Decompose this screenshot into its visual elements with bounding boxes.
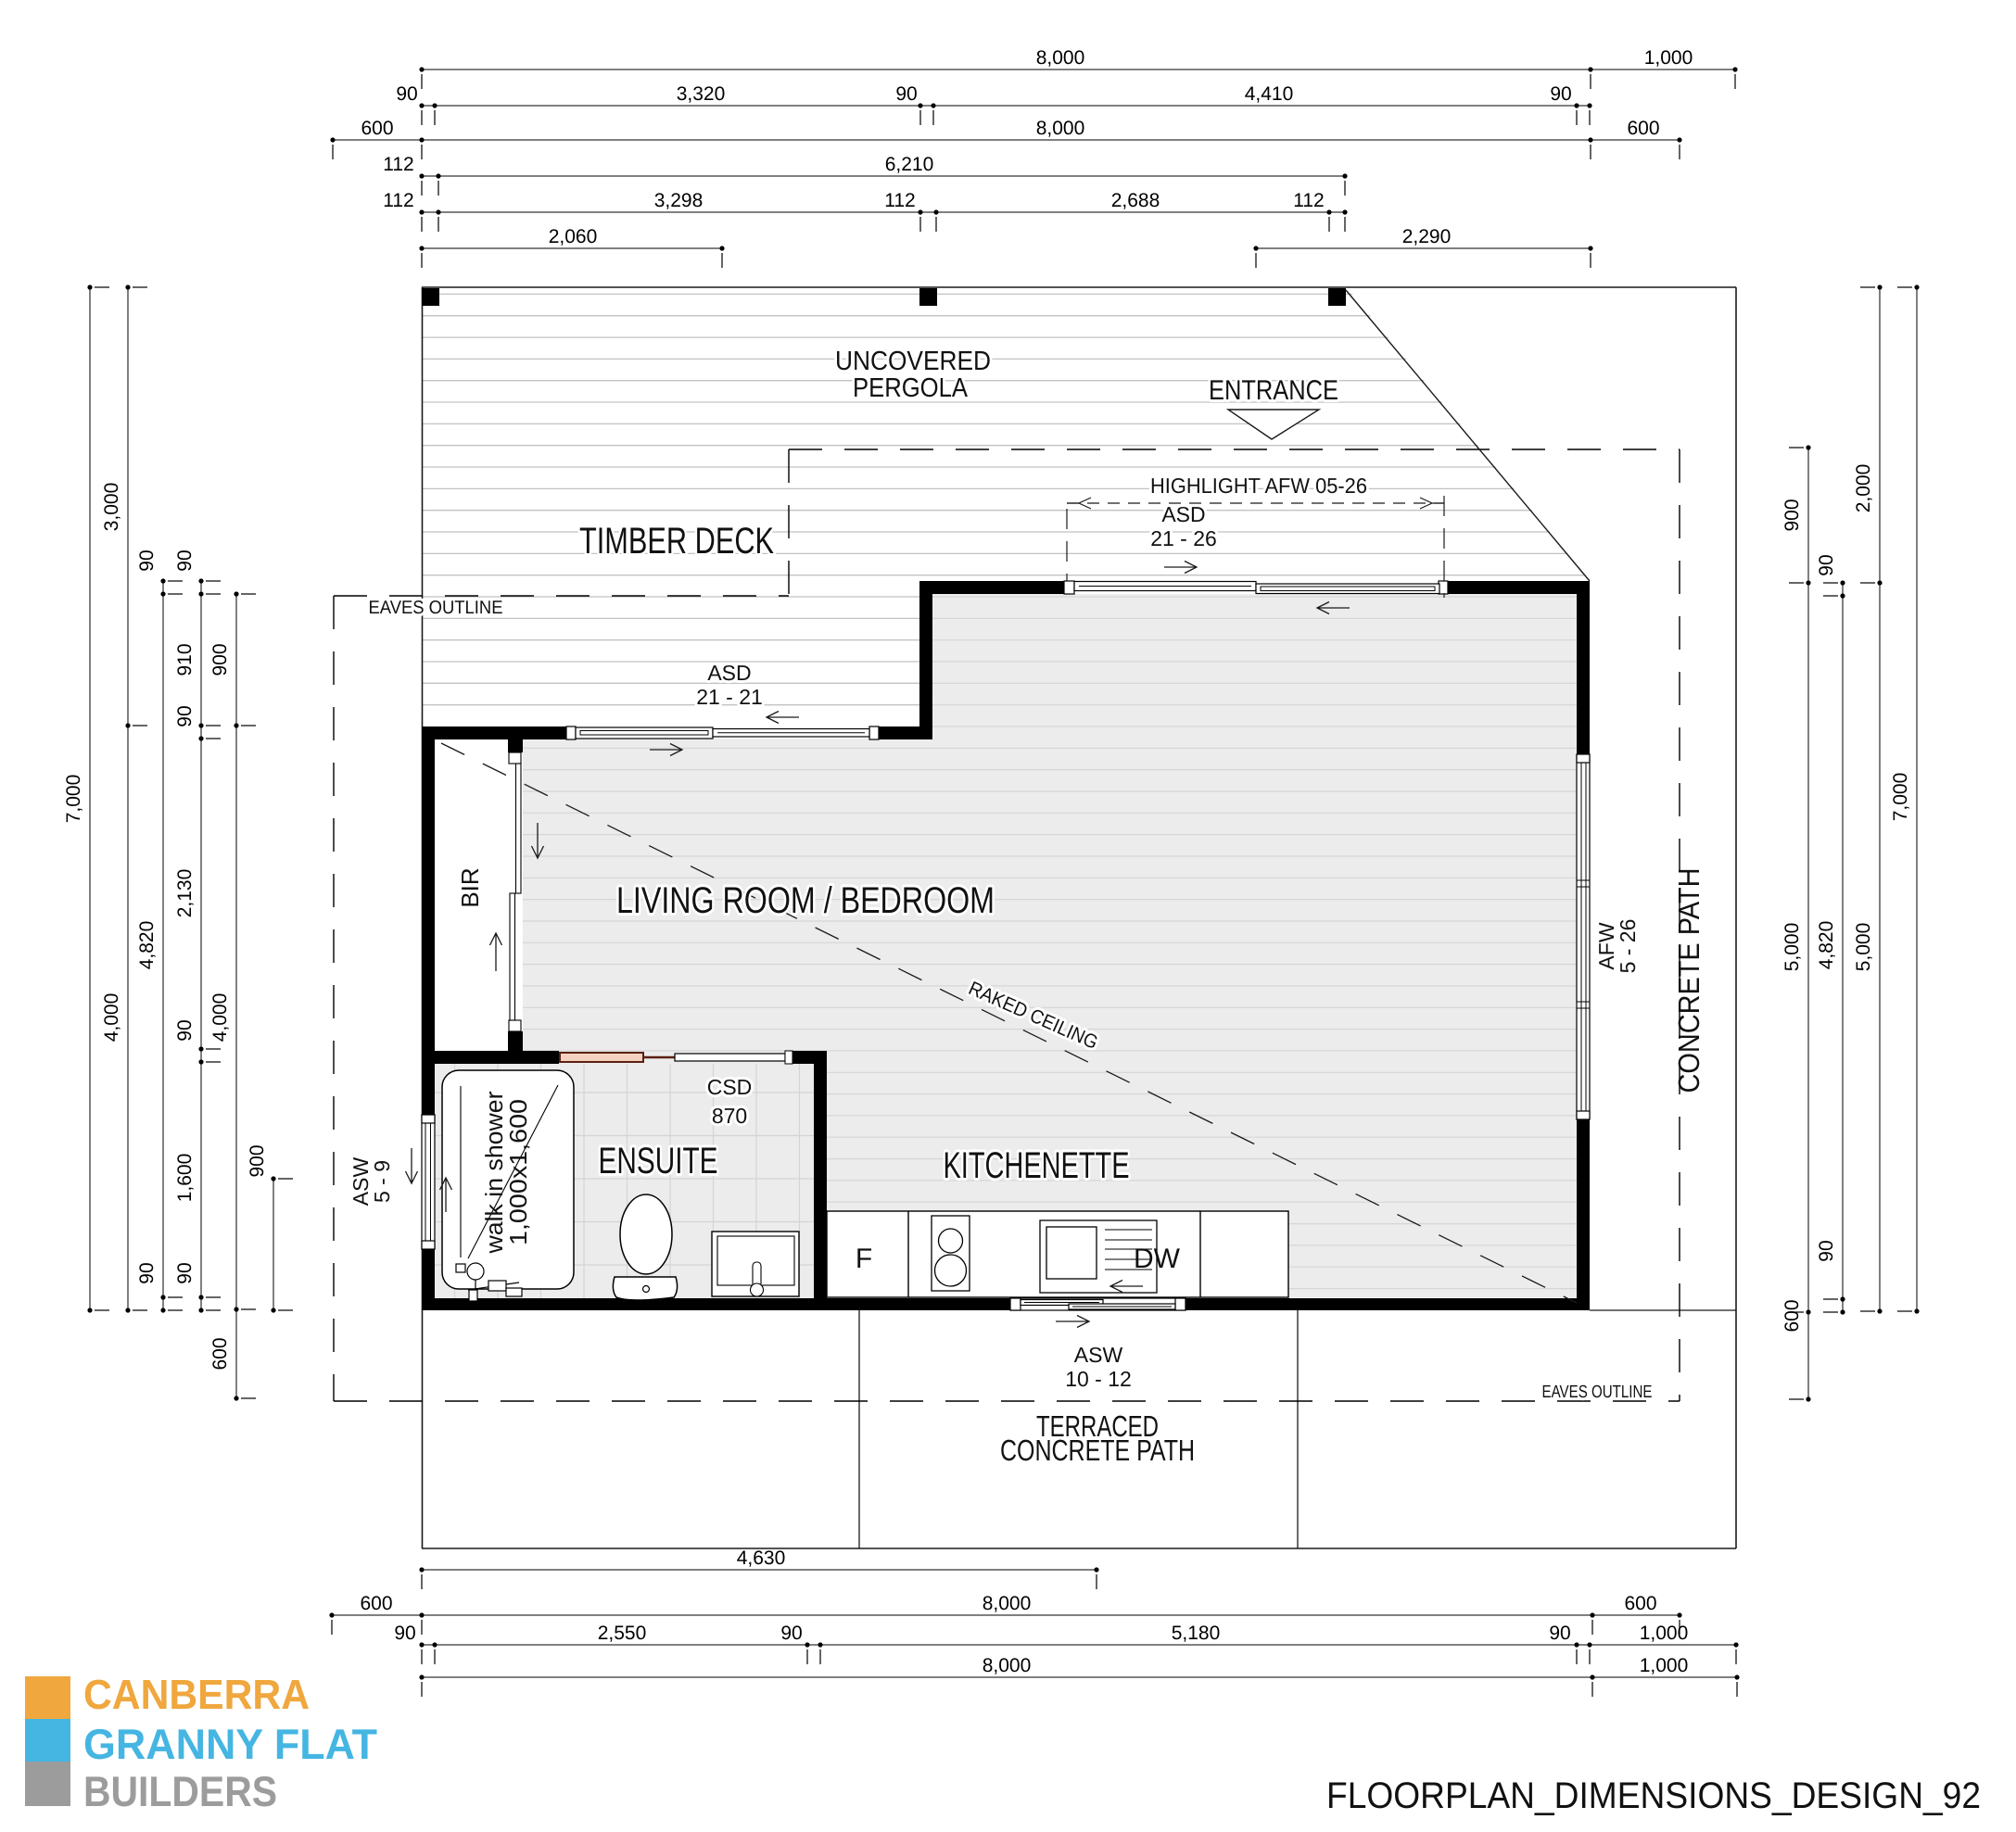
svg-text:7,000: 7,000 [1890,773,1911,822]
svg-text:5,000: 5,000 [1853,923,1874,972]
svg-text:1,000: 1,000 [1640,1623,1689,1644]
svg-text:5 - 26: 5 - 26 [1616,919,1640,974]
svg-text:5 - 9: 5 - 9 [370,1160,394,1203]
svg-text:GRANNY FLAT: GRANNY FLAT [83,1720,377,1768]
svg-text:112: 112 [383,154,413,175]
svg-text:3,298: 3,298 [654,190,704,211]
svg-text:CANBERRA: CANBERRA [83,1671,310,1718]
svg-text:2,290: 2,290 [1402,226,1452,247]
svg-text:EAVES OUTLINE: EAVES OUTLINE [1542,1383,1653,1402]
svg-text:7,000: 7,000 [63,775,84,824]
svg-text:PERGOLA: PERGOLA [853,373,969,403]
svg-text:90: 90 [394,1623,415,1644]
svg-text:90: 90 [1549,1623,1570,1644]
svg-text:4,820: 4,820 [1816,921,1837,970]
svg-text:10 - 12: 10 - 12 [1065,1367,1132,1391]
svg-text:FLOORPLAN_DIMENSIONS_DESIGN_92: FLOORPLAN_DIMENSIONS_DESIGN_92 [1326,1775,1981,1816]
svg-text:ENSUITE: ENSUITE [599,1141,718,1181]
svg-text:EAVES OUTLINE: EAVES OUTLINE [369,598,503,618]
svg-text:4,820: 4,820 [136,921,158,970]
svg-text:8,000: 8,000 [1036,118,1085,139]
svg-text:600: 600 [1627,118,1659,139]
svg-text:1,000: 1,000 [1644,47,1693,69]
svg-text:ASW: ASW [1074,1343,1123,1367]
svg-text:8,000: 8,000 [983,1593,1032,1614]
svg-text:KITCHENETTE: KITCHENETTE [944,1145,1130,1186]
svg-text:2,688: 2,688 [1111,190,1160,211]
svg-text:ASD: ASD [1161,502,1205,526]
svg-text:600: 600 [361,118,393,139]
svg-text:1,600: 1,600 [174,1154,196,1203]
svg-text:90: 90 [174,550,196,571]
svg-text:TIMBER DECK: TIMBER DECK [579,521,774,562]
svg-text:90: 90 [136,1262,158,1283]
svg-text:6,210: 6,210 [885,154,934,175]
svg-text:DW: DW [1134,1244,1181,1274]
svg-text:1,000x1,600: 1,000x1,600 [504,1099,532,1245]
svg-text:90: 90 [174,1019,196,1041]
svg-text:4,630: 4,630 [737,1548,786,1569]
svg-text:BUILDERS: BUILDERS [83,1767,277,1815]
svg-text:5,180: 5,180 [1172,1623,1221,1644]
svg-text:2,000: 2,000 [1853,464,1874,513]
svg-text:21 - 26: 21 - 26 [1150,526,1217,550]
svg-text:112: 112 [884,190,915,211]
svg-text:4,000: 4,000 [101,993,122,1042]
svg-text:90: 90 [1816,1240,1837,1261]
svg-text:8,000: 8,000 [1036,47,1085,69]
svg-text:CSD: CSD [707,1075,753,1099]
svg-text:UNCOVERED: UNCOVERED [835,347,991,376]
svg-text:2,060: 2,060 [549,226,598,247]
svg-text:90: 90 [780,1623,802,1644]
svg-text:4,000: 4,000 [209,993,231,1042]
svg-text:90: 90 [895,83,917,105]
svg-text:90: 90 [136,550,158,571]
svg-text:600: 600 [360,1593,392,1614]
svg-text:90: 90 [174,1262,196,1283]
svg-text:600: 600 [1781,1299,1803,1332]
svg-text:600: 600 [209,1337,231,1370]
svg-text:HIGHLIGHT AFW 05-26: HIGHLIGHT AFW 05-26 [1150,474,1367,498]
svg-text:112: 112 [1293,190,1324,211]
svg-text:900: 900 [1781,499,1803,531]
svg-text:BIR: BIR [456,867,484,907]
svg-text:1,000: 1,000 [1640,1655,1689,1676]
svg-text:90: 90 [174,705,196,726]
svg-text:112: 112 [383,190,413,211]
svg-text:5,000: 5,000 [1781,923,1803,972]
svg-text:8,000: 8,000 [983,1655,1032,1676]
svg-text:CONCRETE PATH: CONCRETE PATH [1672,868,1705,1093]
svg-text:90: 90 [396,83,417,105]
svg-text:600: 600 [1624,1593,1656,1614]
svg-text:2,550: 2,550 [598,1623,647,1644]
svg-text:900: 900 [247,1144,268,1177]
svg-text:F: F [856,1244,872,1274]
svg-text:910: 910 [174,643,196,676]
svg-text:4,410: 4,410 [1245,83,1294,105]
svg-text:ENTRANCE: ENTRANCE [1209,375,1338,406]
svg-text:870: 870 [712,1104,747,1128]
svg-text:2,130: 2,130 [174,869,196,918]
svg-text:90: 90 [1550,83,1571,105]
svg-text:ASD: ASD [707,661,751,685]
svg-text:LIVING ROOM / BEDROOM: LIVING ROOM / BEDROOM [616,880,995,921]
svg-text:3,320: 3,320 [677,83,726,105]
svg-text:21 - 21: 21 - 21 [696,685,763,709]
svg-text:900: 900 [209,643,231,676]
svg-text:CONCRETE PATH: CONCRETE PATH [1000,1434,1195,1467]
svg-text:90: 90 [1816,554,1837,575]
svg-text:3,000: 3,000 [101,483,122,532]
